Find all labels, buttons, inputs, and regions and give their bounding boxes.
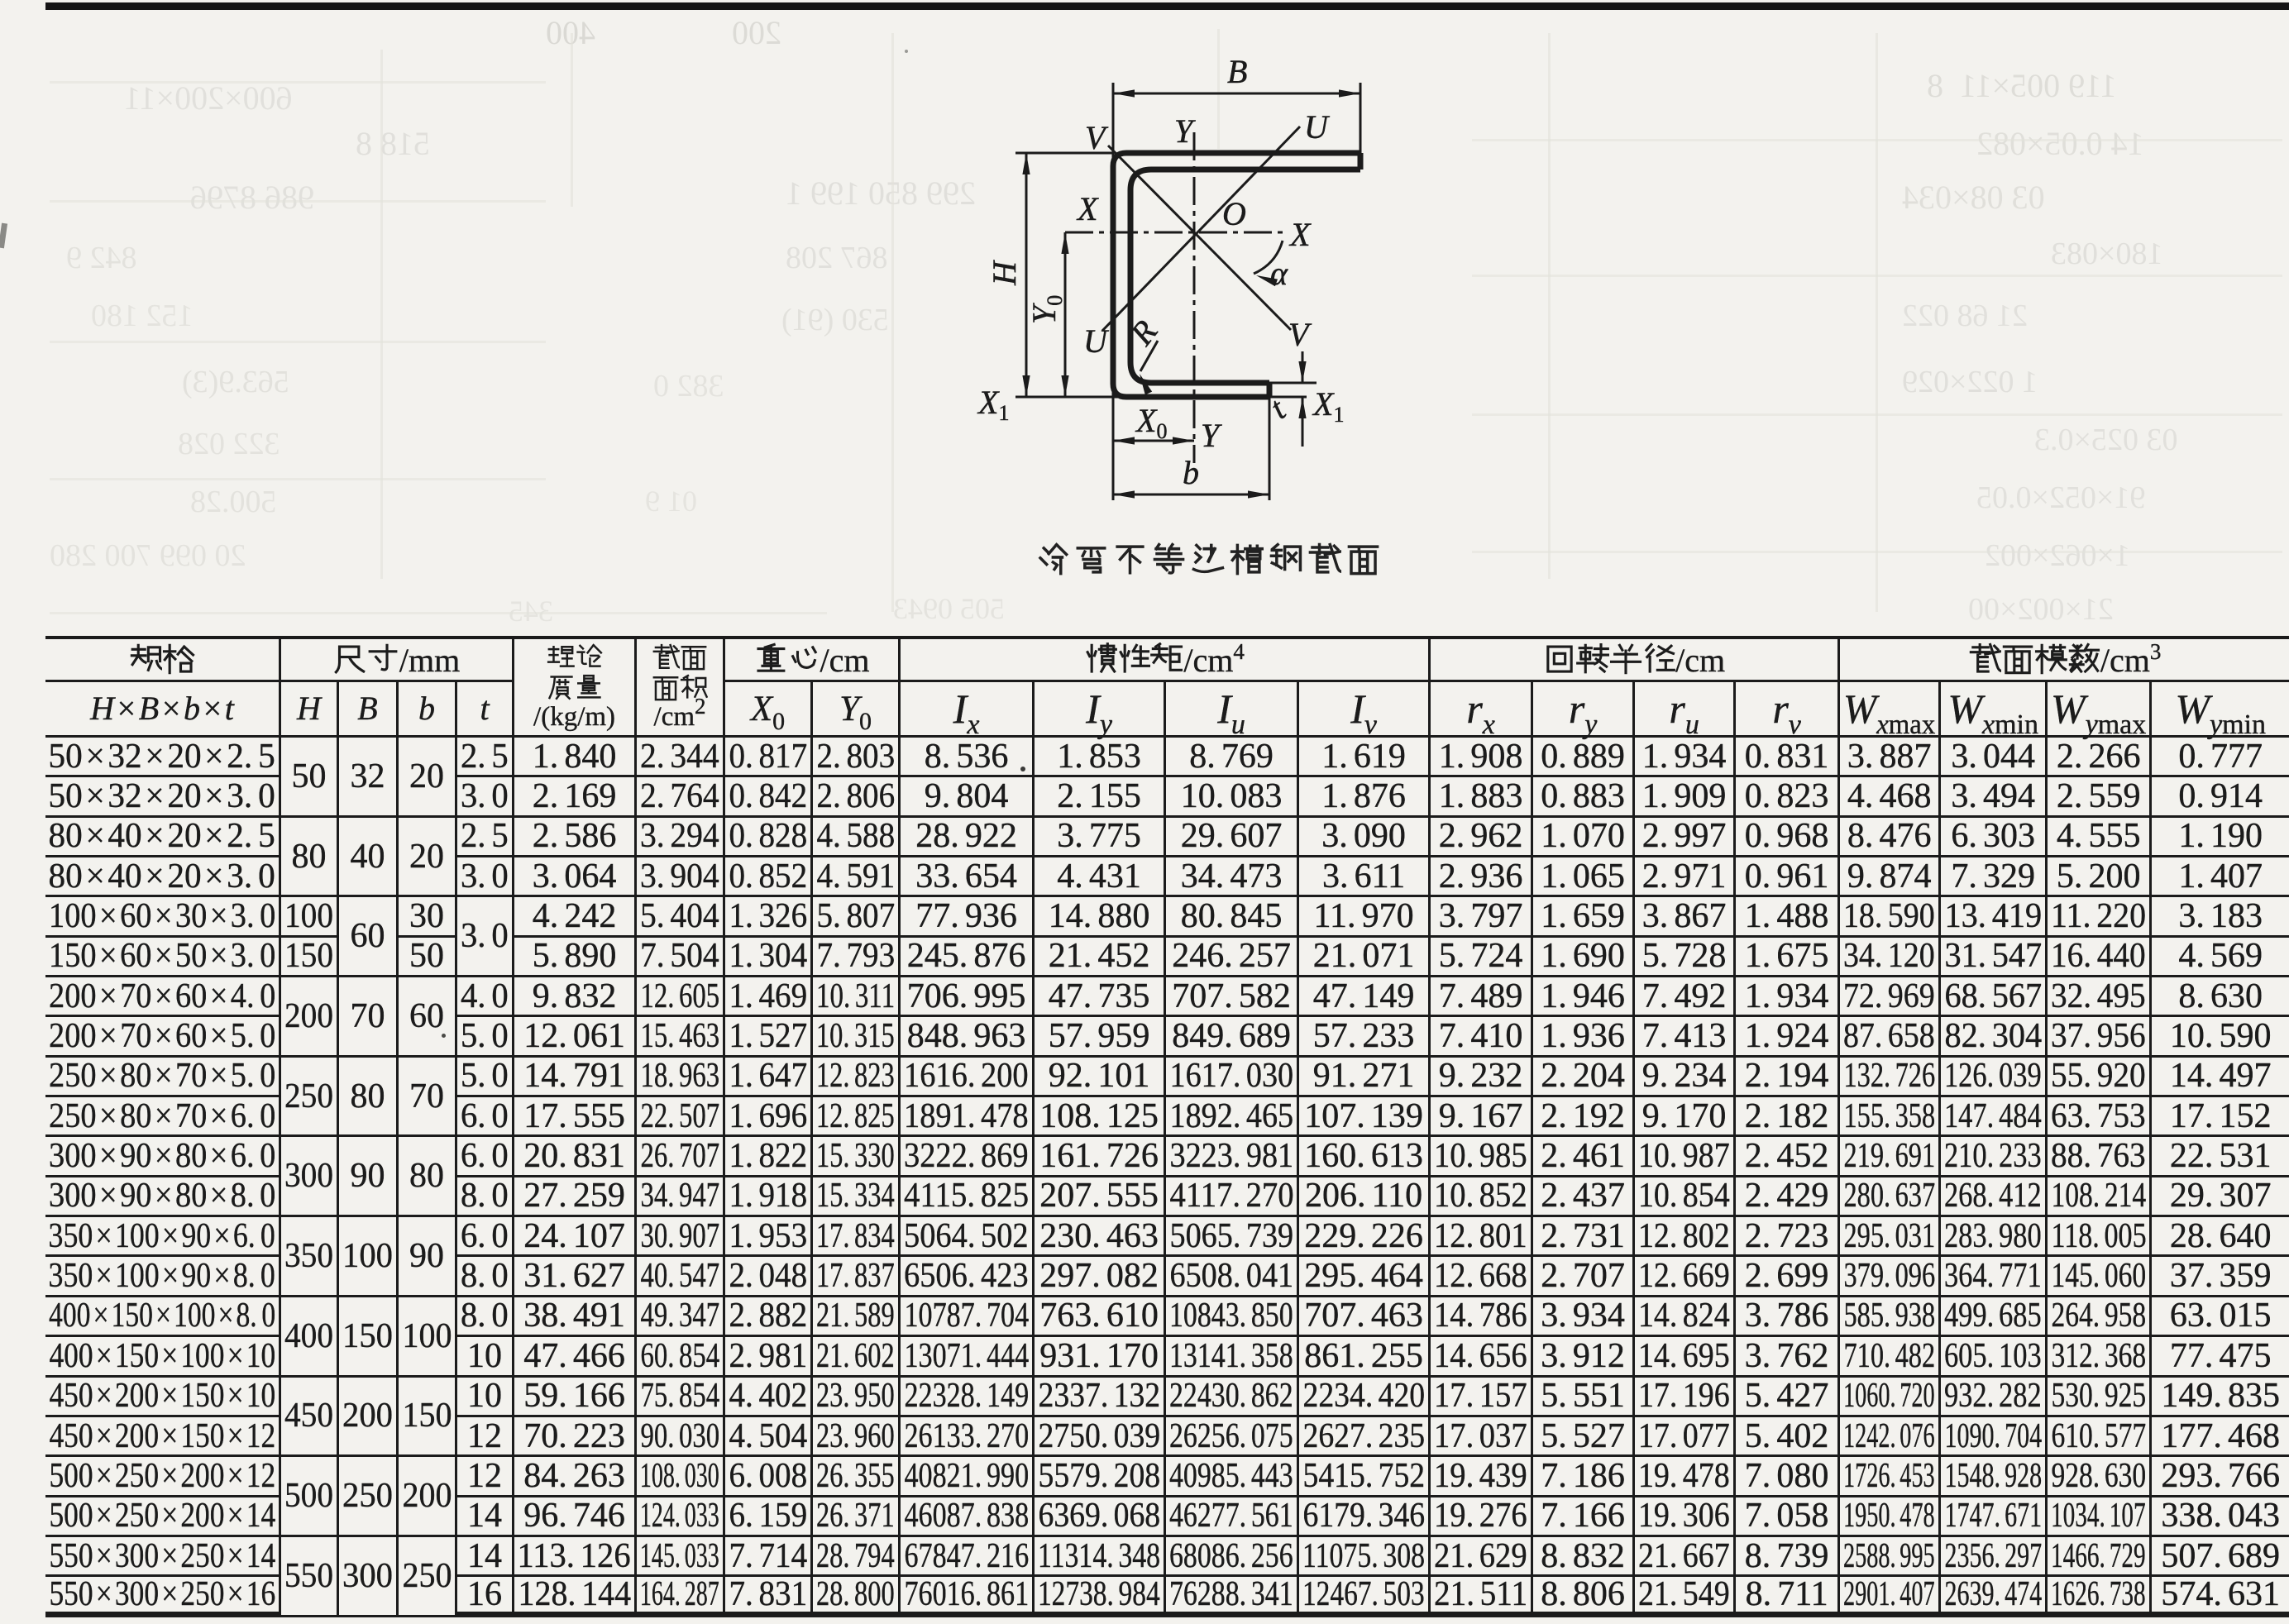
svg-text:b: b xyxy=(1183,454,1199,491)
svg-text:V: V xyxy=(1085,119,1109,156)
svg-text:Y: Y xyxy=(1174,112,1196,150)
svg-text:X1: X1 xyxy=(1312,385,1344,427)
svg-text:α: α xyxy=(1270,255,1288,292)
svg-text:B: B xyxy=(1227,58,1247,90)
svg-text:U: U xyxy=(1083,322,1110,360)
svg-text:H: H xyxy=(986,260,1023,286)
svg-text:Y: Y xyxy=(1201,417,1222,454)
svg-text:O: O xyxy=(1222,195,1246,232)
svg-text:X: X xyxy=(1288,216,1312,253)
svg-text:Y0: Y0 xyxy=(1025,295,1067,324)
svg-text:X1: X1 xyxy=(977,384,1009,425)
svg-text:U: U xyxy=(1304,108,1331,146)
svg-text:V: V xyxy=(1288,316,1312,353)
svg-text:X: X xyxy=(1076,190,1099,227)
svg-text:X0: X0 xyxy=(1135,402,1167,443)
svg-text:t: t xyxy=(1263,390,1293,427)
